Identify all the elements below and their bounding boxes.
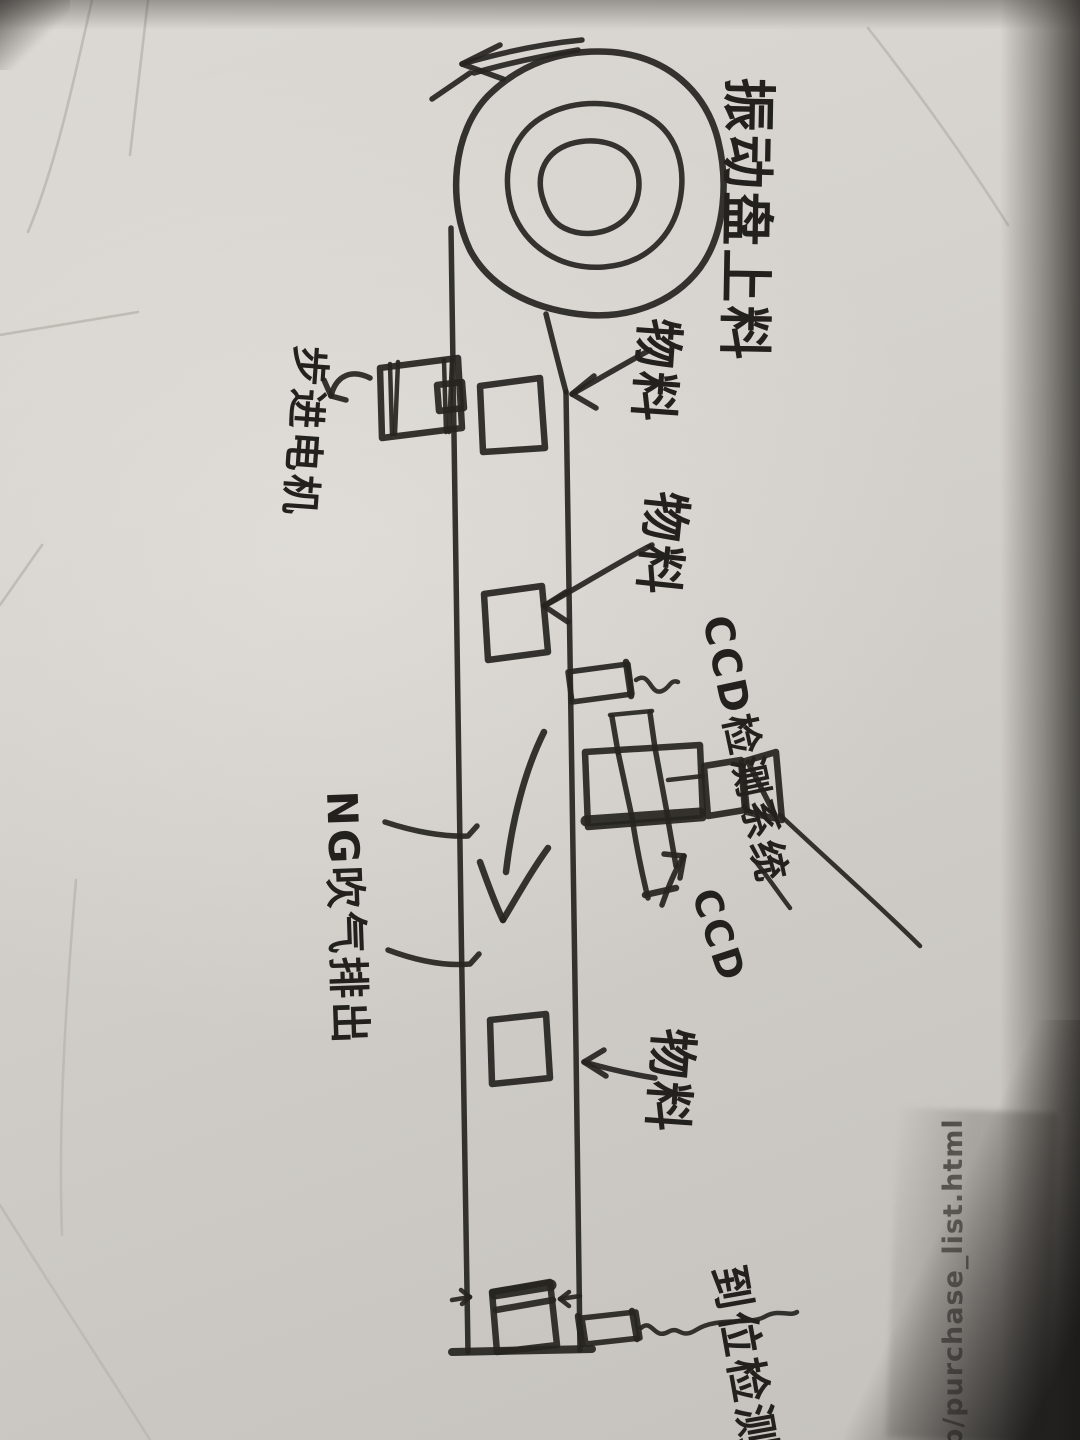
stepper-motor-drawing (380, 358, 464, 438)
flow-direction-arrow (480, 732, 548, 920)
label-stepper-motor: 步进电机 (278, 344, 330, 518)
label-bowl-feeder: 振动盘上料 (716, 77, 775, 363)
vibration-bowl-drawing (456, 51, 723, 315)
stepper-motor-arrow (324, 374, 370, 400)
ng-eject-opening (385, 822, 479, 964)
paper-creases (0, 0, 1008, 1440)
workpiece-2-box (484, 586, 548, 660)
hand-drawing (0, 0, 1080, 1440)
light-source-sensor (568, 662, 678, 702)
workpiece-3-box (490, 1014, 550, 1084)
label-material-bottom: 物料 (641, 1027, 698, 1136)
bowl-rotation-arrow (432, 40, 582, 99)
printed-edge-text: b/purchase_list.html (940, 1118, 967, 1440)
sketch-photo: 振动盘上料 物料 物料 CCD检测系统 CCD 步进电机 NG吹气排出 物料 到… (0, 0, 1080, 1440)
label-material-top: 物料 (627, 317, 684, 426)
workpiece-1-box (480, 378, 545, 452)
label-material-middle: 物料 (631, 489, 692, 600)
label-ng-eject: NG吹气排出 (320, 790, 371, 1047)
workpiece-4-box (492, 1282, 557, 1352)
